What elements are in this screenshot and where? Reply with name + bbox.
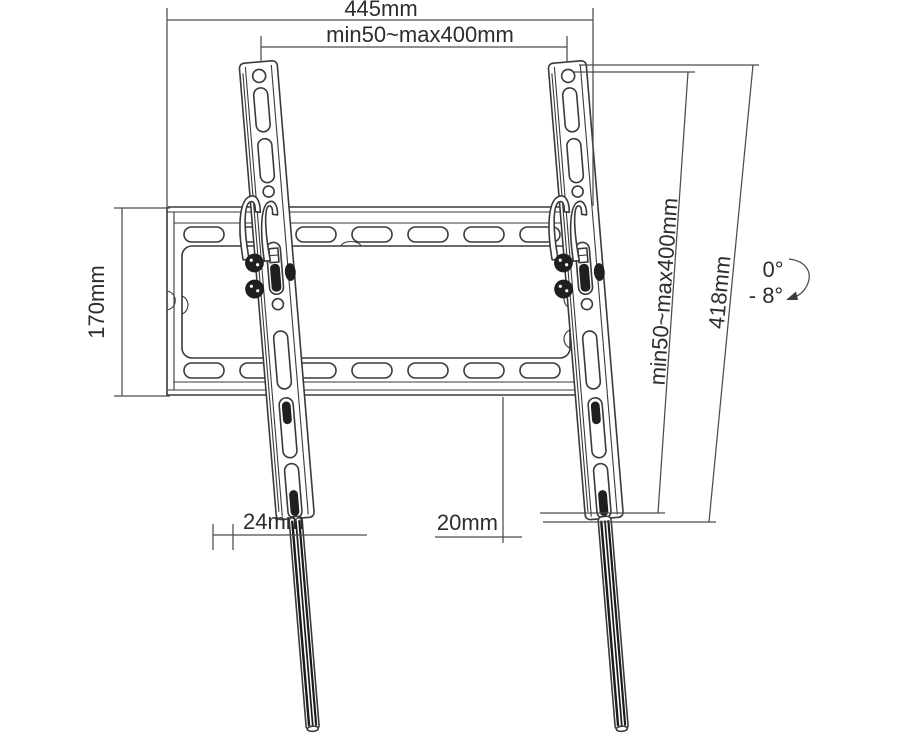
- plate-centre-panel: [182, 246, 570, 358]
- dim-offset-right-label: 20mm: [437, 510, 498, 535]
- dimension-offset-right: 20mm: [435, 397, 522, 543]
- dim-vesa-width-label: min50~max400mm: [326, 22, 514, 47]
- plate-slot-row-bottom: [184, 363, 560, 378]
- tilt-angle-annotation: 0° - 8°: [749, 257, 809, 308]
- dim-overall-width-label: 445mm: [344, 0, 417, 21]
- dimension-plate-height: 170mm: [84, 208, 170, 396]
- tv-mount-diagram: 445mm min50~max400mm 170mm min50~max400m…: [0, 0, 906, 741]
- wall-plate: [167, 207, 593, 395]
- technical-drawing: 445mm min50~max400mm 170mm min50~max400m…: [0, 0, 906, 741]
- tilt-arrowhead-icon: [786, 292, 798, 301]
- tilt-lower-label: - 8°: [749, 283, 783, 308]
- tilt-arrow-icon: [789, 259, 809, 298]
- tilt-upper-label: 0°: [762, 257, 783, 282]
- dim-plate-height-label: 170mm: [84, 265, 109, 338]
- dimension-vesa-width: min50~max400mm: [261, 22, 567, 62]
- dim-vesa-height-label: min50~max400mm: [645, 197, 683, 386]
- dim-offset-left-label: 24mm: [243, 509, 304, 534]
- dimension-offset-left: 24mm: [213, 509, 367, 550]
- dim-bracket-length-label: 418mm: [704, 255, 736, 330]
- left-bracket-rail: [226, 60, 333, 734]
- right-bracket-rail: [535, 60, 642, 734]
